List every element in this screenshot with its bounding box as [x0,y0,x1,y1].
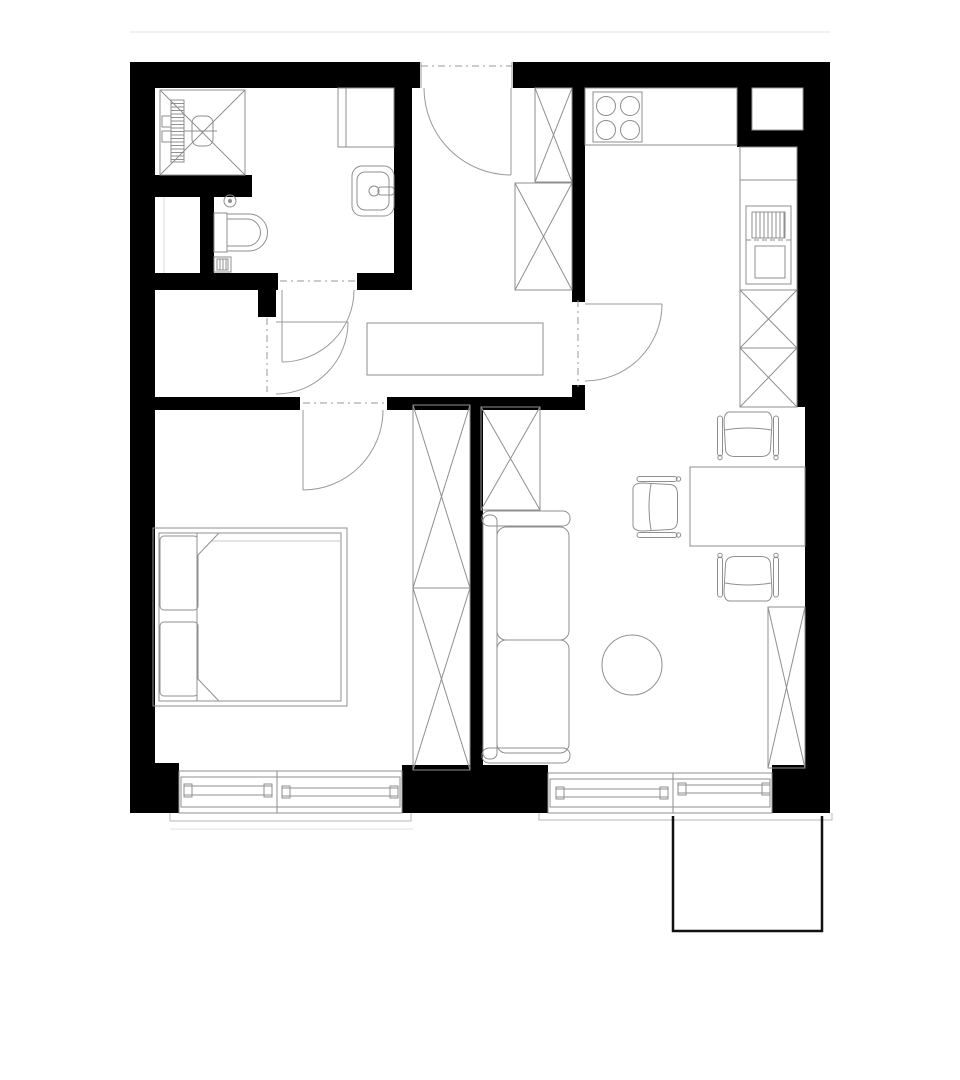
sofa-armrest-bottom [482,748,570,763]
oven-door [755,246,785,278]
kitchen-partition-upper [572,85,585,302]
closet-doorway-wall [258,278,276,317]
hall-wardrobe-upper [535,88,572,182]
burner [597,121,616,140]
outer-wall-left [130,62,155,763]
bedroom-top-wall-left [130,397,300,410]
toilet-brush-hatch [217,259,228,270]
bed-pillow-2 [160,622,198,696]
living-window-sill [539,813,832,820]
bedroom-wardrobe-upper [413,405,470,588]
hall-wardrobe-lower [515,183,572,290]
dining-chair-bottom [718,553,779,601]
chair-back-line [649,484,651,530]
bathroom-right-wall [394,88,412,278]
bed-frame [153,528,347,706]
balcony-outline [673,816,822,931]
washbasin [352,166,394,216]
basin-faucet [378,187,394,195]
sofa-seat-2 [497,640,569,753]
shower-partition-wall [155,175,252,197]
chair-arm-left [637,533,677,538]
kitchen-tall-unit-top [740,147,797,180]
floor-plan-page [0,0,960,1080]
closet-door-swing [276,322,348,394]
bottom-wall-left-block [130,763,179,813]
chair-arm-left [774,557,779,597]
dining-table [690,467,805,546]
chair-arm-right [637,477,677,482]
shower-mixer [162,116,171,127]
chair-seat [724,557,772,602]
sofa-seat-1 [497,527,569,640]
bathroom-bottom-wall-right [357,273,412,290]
chair-arm-right [718,557,723,597]
burner [597,97,616,116]
living-window-sash-left [556,789,668,797]
chair-seat [724,412,772,457]
outer-wall-right [805,62,830,813]
shower-screen [171,100,184,162]
sofa-side-cabinet [481,407,540,510]
outer-wall-top-left [130,62,420,88]
layer-balcony [673,816,822,931]
toilet-bowl [227,214,268,251]
side-table [602,635,662,695]
bed-pillow-1 [160,536,198,610]
floor-drain-dot [229,200,232,203]
chair-seat [633,483,678,531]
chair-arm-left [718,416,723,456]
outer-wall-top-right [513,62,830,88]
bed-fold-bottom [197,678,219,701]
bedroom-window-sill [170,813,411,821]
kitchen-partition-lower [572,385,585,410]
bottom-wall-right-block [772,765,830,813]
sofa-backrest [483,515,497,759]
bedroom-window-sash-right [282,788,398,796]
duct-partition-wall [200,197,214,273]
chair-back-line [725,583,771,585]
kitchen-cabinet-x2 [740,348,797,407]
layer-doors [276,88,662,490]
bed-mattress [159,533,341,701]
entrance-door-swing [424,88,511,175]
bedroom-wardrobe-lower [413,588,470,770]
bed-fold-top [197,533,219,556]
bedroom-top-wall-right [387,397,585,410]
console-table [367,323,543,375]
chair-back-line [725,428,771,430]
living-window-sash-right [678,785,770,793]
media-cabinet [768,607,805,768]
shower-mixer [162,131,171,142]
dining-chair-left [633,477,681,538]
toilet-bowl-rim [227,219,261,246]
toilet-cistern [214,213,227,252]
burner [621,97,640,116]
oven-vent [752,212,785,238]
floor-plan-drawing [0,0,960,1080]
cooktop [593,92,642,142]
kitchen-cabinet-x1 [740,290,797,348]
washbasin-inner [357,172,389,210]
dining-chair-top [718,412,779,460]
bathroom-door-swing [282,290,354,362]
sofa-armrest-top [482,511,570,526]
bedroom-door-swing [303,410,383,490]
duct-opening [752,88,803,130]
chair-arm-right [774,416,779,456]
bottom-wall-center-pier [402,765,548,813]
kitchen-door-swing [585,304,662,381]
burner [621,121,640,140]
bedroom-window-sash-left [184,786,272,795]
